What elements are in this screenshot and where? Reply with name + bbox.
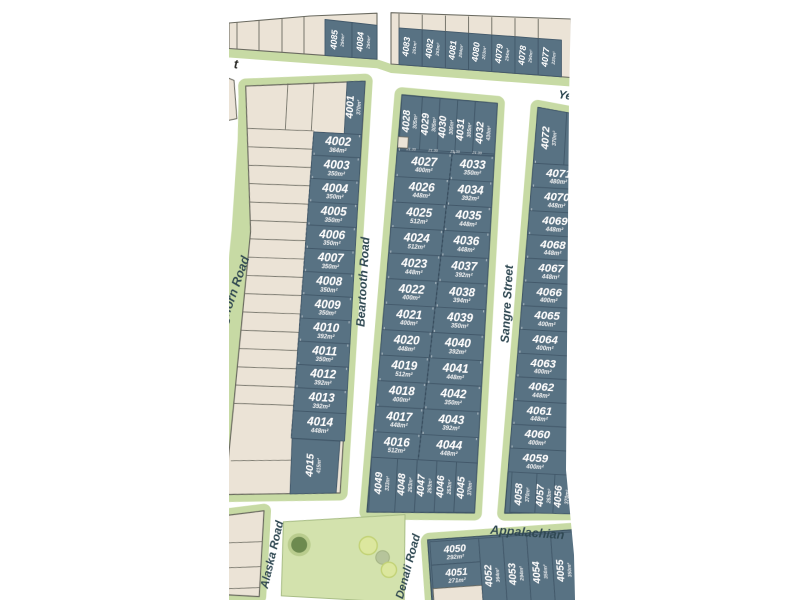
svg-text:4044: 4044: [435, 438, 463, 453]
svg-text:4046: 4046: [435, 475, 447, 499]
svg-text:370m²: 370m²: [467, 481, 474, 496]
svg-text:512m²: 512m²: [395, 371, 414, 379]
svg-text:400m²: 400m²: [525, 463, 545, 471]
svg-text:448m²: 448m²: [529, 416, 549, 424]
svg-text:448m²: 448m²: [411, 192, 431, 200]
svg-text:400m²: 400m²: [401, 294, 421, 302]
svg-text:4008: 4008: [315, 274, 343, 289]
svg-text:415m²: 415m²: [316, 458, 323, 475]
svg-text:4038: 4038: [448, 285, 476, 300]
svg-text:21.30: 21.30: [471, 151, 483, 156]
svg-text:4016: 4016: [383, 435, 411, 450]
svg-text:448m²: 448m²: [389, 422, 409, 430]
svg-text:4045: 4045: [455, 476, 467, 500]
svg-text:4010: 4010: [312, 321, 340, 336]
svg-text:4017: 4017: [385, 410, 413, 425]
svg-text:4005: 4005: [319, 204, 347, 219]
svg-text:4032: 4032: [474, 121, 486, 145]
svg-text:512m²: 512m²: [387, 447, 406, 455]
svg-text:400m²: 400m²: [391, 396, 411, 404]
svg-text:4029: 4029: [420, 112, 432, 136]
svg-text:400m²: 400m²: [533, 368, 553, 376]
svg-text:350m²: 350m²: [567, 562, 574, 577]
svg-text:4003: 4003: [322, 158, 350, 173]
svg-text:448m²: 448m²: [445, 374, 465, 382]
svg-text:4039: 4039: [446, 311, 474, 326]
svg-text:392m²: 392m²: [314, 379, 333, 387]
svg-text:4057: 4057: [535, 484, 547, 508]
svg-text:263m²: 263m²: [408, 477, 415, 493]
svg-text:400m²: 400m²: [399, 320, 419, 328]
svg-text:4023: 4023: [400, 257, 428, 272]
svg-text:448m²: 448m²: [396, 345, 416, 353]
svg-text:4019: 4019: [390, 359, 418, 374]
svg-text:4033: 4033: [459, 157, 487, 172]
svg-text:4043: 4043: [437, 413, 465, 428]
svg-text:350m²: 350m²: [543, 564, 550, 579]
svg-text:4047: 4047: [416, 474, 428, 498]
svg-text:392m²: 392m²: [461, 195, 480, 203]
svg-text:392m²: 392m²: [317, 333, 336, 341]
svg-text:4052: 4052: [483, 564, 496, 588]
svg-text:480m²: 480m²: [548, 178, 568, 186]
svg-text:350m²: 350m²: [320, 286, 339, 294]
svg-text:4054: 4054: [531, 560, 544, 584]
svg-text:448m²: 448m²: [545, 226, 565, 234]
svg-text:350m²: 350m²: [321, 263, 340, 271]
svg-text:4030: 4030: [437, 115, 449, 139]
svg-text:4053: 4053: [507, 562, 520, 586]
svg-text:448m²: 448m²: [541, 273, 561, 281]
svg-text:512m²: 512m²: [407, 243, 426, 251]
svg-text:4072: 4072: [540, 126, 552, 151]
svg-text:4004: 4004: [321, 181, 349, 196]
svg-text:4026: 4026: [407, 180, 435, 195]
svg-text:350m²: 350m²: [327, 170, 346, 178]
svg-text:4012: 4012: [309, 367, 337, 382]
svg-text:4071: 4071: [545, 167, 572, 180]
svg-text:4036: 4036: [452, 234, 480, 249]
svg-text:448m²: 448m²: [531, 392, 551, 400]
svg-text:400m²: 400m²: [537, 321, 557, 329]
svg-text:370m²: 370m²: [552, 131, 559, 147]
svg-text:448m²: 448m²: [439, 450, 459, 458]
svg-text:4020: 4020: [393, 333, 421, 348]
svg-text:4009: 4009: [313, 298, 341, 313]
svg-text:4028: 4028: [401, 109, 413, 133]
svg-text:4015: 4015: [304, 453, 316, 478]
svg-text:4049: 4049: [373, 471, 385, 495]
svg-text:294m²: 294m²: [365, 35, 371, 50]
svg-text:4007: 4007: [316, 251, 344, 266]
svg-text:4018: 4018: [388, 384, 416, 399]
svg-text:448m²: 448m²: [456, 246, 476, 254]
svg-text:4055: 4055: [555, 559, 568, 583]
svg-text:4048: 4048: [396, 473, 408, 497]
svg-text:4021: 4021: [395, 308, 422, 322]
svg-text:4025: 4025: [405, 206, 433, 221]
svg-text:350m²: 350m²: [463, 169, 482, 177]
svg-text:370m²: 370m²: [525, 487, 532, 502]
svg-text:4031: 4031: [455, 118, 467, 142]
svg-text:4001: 4001: [345, 95, 357, 120]
svg-text:4037: 4037: [450, 259, 478, 274]
svg-text:512m²: 512m²: [410, 218, 429, 226]
svg-text:400m²: 400m²: [535, 344, 555, 352]
svg-text:4024: 4024: [403, 231, 431, 246]
svg-text:333m²: 333m²: [385, 476, 392, 491]
svg-text:448m²: 448m²: [458, 220, 478, 228]
svg-text:4035: 4035: [454, 208, 482, 223]
svg-text:394m²: 394m²: [453, 297, 472, 305]
svg-text:448m²: 448m²: [547, 202, 567, 210]
svg-text:400m²: 400m²: [539, 297, 559, 305]
svg-text:430m²: 430m²: [486, 126, 493, 142]
svg-text:4014: 4014: [306, 415, 334, 430]
svg-text:364m²: 364m²: [329, 147, 348, 155]
svg-text:350m²: 350m²: [451, 323, 470, 331]
svg-text:271m²: 271m²: [447, 577, 467, 585]
svg-text:4022: 4022: [397, 282, 425, 297]
svg-text:21.30: 21.30: [449, 150, 461, 155]
svg-text:4084: 4084: [354, 31, 365, 52]
svg-text:305m²: 305m²: [466, 122, 473, 137]
svg-text:4034: 4034: [456, 183, 484, 198]
svg-text:305m²: 305m²: [412, 114, 419, 129]
svg-text:263m²: 263m²: [427, 478, 434, 494]
svg-text:4013: 4013: [307, 391, 335, 406]
svg-text:392m²: 392m²: [442, 425, 461, 433]
svg-text:364m²: 364m²: [495, 567, 502, 582]
svg-text:4058: 4058: [513, 483, 525, 507]
svg-text:400m²: 400m²: [527, 439, 547, 447]
svg-text:4041: 4041: [441, 362, 468, 376]
svg-text:392m²: 392m²: [449, 348, 468, 356]
svg-text:370m²: 370m²: [356, 100, 363, 116]
svg-text:350m²: 350m²: [444, 399, 463, 407]
svg-text:4002: 4002: [324, 135, 352, 150]
svg-text:4042: 4042: [439, 387, 467, 402]
svg-text:350m²: 350m²: [315, 356, 334, 364]
svg-text:4006: 4006: [318, 228, 346, 243]
svg-text:350m²: 350m²: [326, 193, 345, 201]
svg-text:4027: 4027: [410, 155, 438, 170]
svg-text:350m²: 350m²: [323, 240, 342, 248]
svg-text:4056: 4056: [553, 485, 565, 509]
svg-text:21.30: 21.30: [427, 148, 439, 153]
svg-text:350m²: 350m²: [318, 310, 337, 318]
svg-text:4085: 4085: [328, 29, 339, 50]
svg-text:448m²: 448m²: [543, 250, 563, 258]
svg-text:4040: 4040: [444, 336, 472, 351]
svg-text:400m²: 400m²: [414, 167, 434, 175]
svg-text:392m²: 392m²: [312, 403, 331, 411]
svg-text:392m²: 392m²: [455, 272, 474, 280]
svg-text:294m²: 294m²: [519, 566, 526, 582]
svg-text:294m²: 294m²: [339, 33, 345, 48]
svg-text:350m²: 350m²: [324, 217, 343, 225]
svg-text:448m²: 448m²: [404, 269, 424, 277]
svg-text:263m²: 263m²: [447, 479, 454, 495]
svg-text:292m²: 292m²: [446, 553, 466, 561]
svg-text:448m²: 448m²: [310, 427, 330, 435]
